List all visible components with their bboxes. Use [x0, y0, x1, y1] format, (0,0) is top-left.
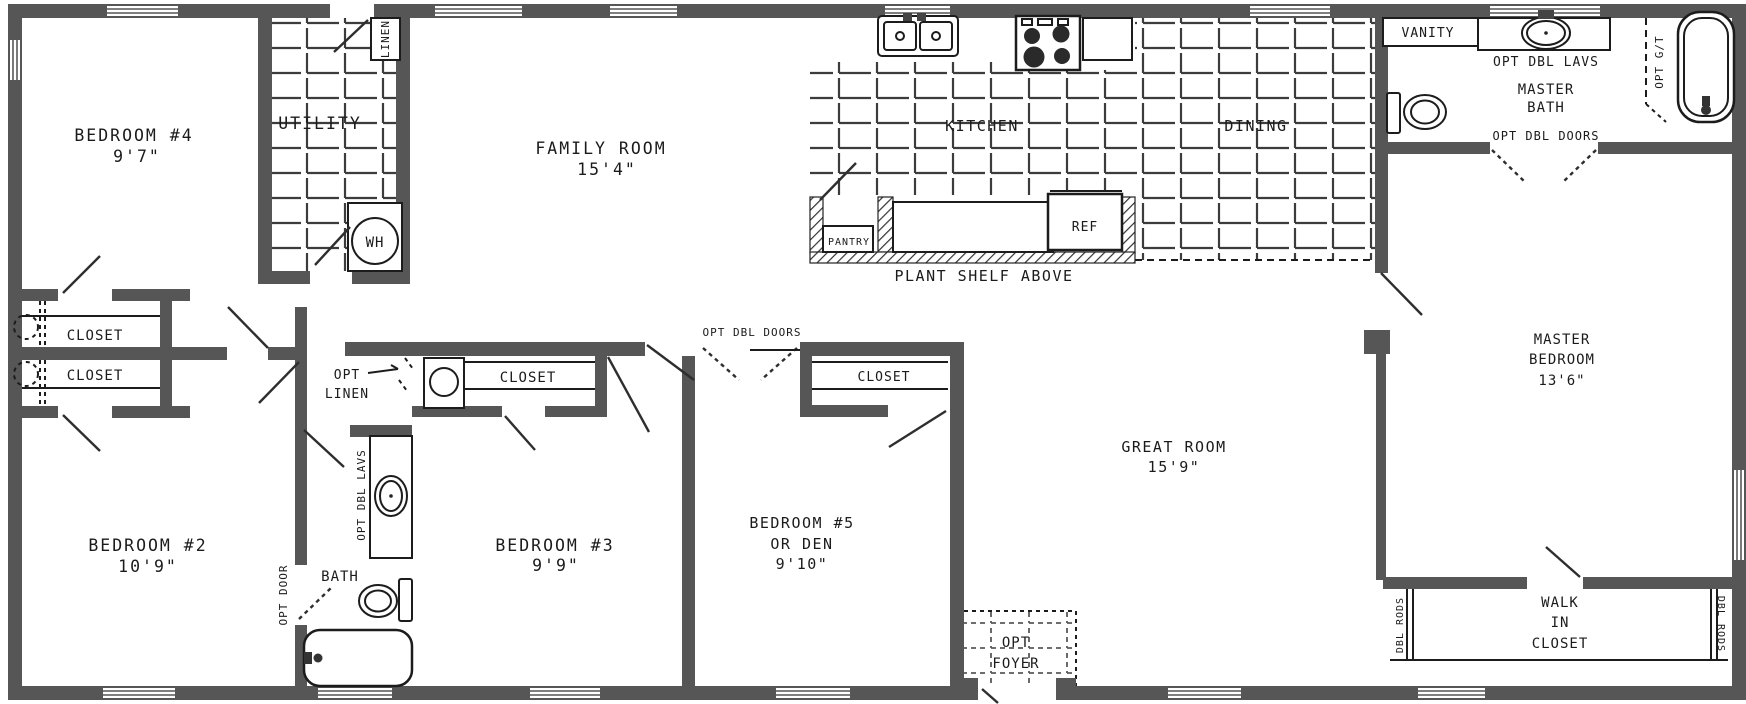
wall-walkin-closet-north [1583, 577, 1732, 589]
floor-plan: BEDROOM #4 9'7" UTILITY LINEN WH FAMILY … [0, 0, 1746, 704]
door-swing-walkin-closet [1546, 547, 1580, 577]
label-opt-garden-tub: OPT G/T [1653, 35, 1666, 88]
wall-closet-top [112, 289, 190, 301]
label-kitchen: KITCHEN [945, 117, 1019, 135]
opt-dbl-door-swing [761, 348, 797, 380]
label-bedroom3: BEDROOM #3 [495, 536, 614, 555]
opt-dbl-door-swing-masterbath [1492, 150, 1526, 183]
opt-dbl-door-swing-masterbath [1562, 150, 1596, 183]
label-opt-foyer-1: OPT [1002, 635, 1030, 651]
label-water-heater: WH [366, 235, 385, 251]
wall-utility-south [258, 271, 310, 284]
window [107, 6, 178, 16]
label-master-bedroom-2: BEDROOM [1529, 352, 1595, 368]
wall-greatroom-masterbedroom [1376, 354, 1386, 580]
window [435, 6, 522, 16]
label-bedroom5-alt: OR DEN [770, 535, 833, 553]
label-pantry: PANTRY [828, 237, 870, 248]
label-walkin-1: WALK [1541, 595, 1579, 611]
wall-foyer-stub [1056, 678, 1076, 686]
hall-bathtub [304, 630, 412, 686]
label-great-room: GREAT ROOM [1121, 438, 1226, 456]
garden-tub [1678, 12, 1734, 122]
door-swing-bedroom2 [259, 362, 299, 403]
wall-bed5-closet-bottom [800, 405, 888, 417]
wall-exterior-left [8, 4, 22, 700]
wall-bedroom4-utility [258, 18, 272, 271]
opt-linen-door [405, 358, 413, 369]
utility-exterior-door-gap [330, 4, 374, 18]
opt-linen-door [399, 380, 407, 391]
label-dining: DINING [1224, 117, 1287, 135]
opt-linen-arrow [368, 369, 398, 373]
label-closet-left-bottom: CLOSET [67, 368, 124, 384]
window [1250, 6, 1330, 16]
bar-wall-hatch [810, 252, 1135, 263]
label-plant-shelf: PLANT SHELF ABOVE [894, 267, 1073, 285]
bar-wall-hatch [1122, 197, 1135, 253]
label-bedroom2: BEDROOM #2 [88, 536, 207, 555]
door-swing-hall [228, 307, 268, 348]
label-great-room-dim: 15'9" [1148, 458, 1201, 476]
label-master-bedroom-dim: 13'6" [1538, 373, 1585, 389]
label-bedroom5: BEDROOM #5 [749, 514, 854, 532]
window [10, 40, 20, 80]
kitchen-counter [1083, 18, 1132, 60]
wall-bed3-closet-right [595, 356, 607, 414]
label-vanity: VANITY [1402, 26, 1455, 41]
wall-exterior-right [1732, 4, 1746, 700]
wall-masterbath-south [1598, 142, 1732, 154]
bar-wall-hatch [878, 197, 893, 252]
opt-linen-arrow [391, 365, 398, 369]
label-opt-foyer-2: FOYER [992, 656, 1039, 672]
window [1168, 688, 1241, 698]
wall-hall-south [345, 342, 412, 356]
label-opt-linen-2: LINEN [325, 387, 369, 402]
window [530, 688, 600, 698]
hall-bath-vanity [370, 436, 412, 558]
label-opt-dbl-doors-hall: OPT DBL DOORS [702, 326, 801, 339]
opt-garden-tub-line [1646, 104, 1666, 122]
wall-closet-right [160, 289, 172, 418]
label-master-bath-1: MASTER [1518, 82, 1575, 98]
wall-bed5-closet-top [800, 342, 953, 356]
window [776, 688, 850, 698]
label-master-bedroom-1: MASTER [1534, 332, 1591, 348]
label-closet-bed5: CLOSET [858, 370, 911, 385]
label-opt-dbl-lavs-master: OPT DBL LAVS [1493, 55, 1599, 70]
wall-masterbath-south [1383, 142, 1490, 154]
wall-walkin-closet-north [1383, 577, 1527, 589]
wall-closet-bottom [22, 406, 58, 418]
label-linen: LINEN [379, 20, 392, 58]
window [1734, 470, 1744, 560]
label-bedroom4: BEDROOM #4 [74, 126, 193, 145]
wall-foyer-stub [958, 678, 978, 686]
label-opt-linen-1: OPT [334, 368, 360, 383]
label-bedroom2-dim: 10'9" [118, 557, 178, 576]
wall-column [1364, 330, 1390, 354]
window [610, 6, 677, 16]
opt-door-swing [299, 588, 331, 619]
label-family-room: FAMILY ROOM [535, 139, 666, 158]
door-swing-hall-bath [304, 430, 344, 467]
door-swing-bed5-closet [889, 411, 946, 447]
foyer-door-gap [978, 686, 1056, 700]
label-refrigerator: REF [1072, 220, 1098, 235]
label-dbl-rods-right: DBL RODS [1715, 596, 1726, 652]
wall-bedroom2-bath [295, 307, 307, 565]
wall-bed3-closet-top [412, 342, 607, 356]
label-dbl-rods-left: DBL RODS [1395, 597, 1406, 653]
label-closet-left-top: CLOSET [67, 328, 124, 344]
label-closet-bed3: CLOSET [500, 370, 557, 386]
stove [1016, 16, 1080, 70]
label-master-bath-2: BATH [1527, 100, 1565, 116]
label-opt-dbl-lavs-hall: OPT DBL LAVS [355, 449, 368, 540]
opt-dbl-door-swing [703, 348, 739, 380]
door-swing-bedroom4 [63, 256, 100, 293]
door-swing-master-bedroom [1381, 273, 1422, 315]
window [103, 688, 175, 698]
door-swing-bedroom3 [608, 357, 649, 432]
door-swing-bed3-closet [505, 416, 535, 450]
wall-bedroom2-north [172, 347, 227, 360]
hall-bath-toilet [359, 579, 412, 621]
door-swing-closet [63, 415, 100, 451]
label-opt-dbl-doors-master: OPT DBL DOORS [1493, 129, 1600, 143]
label-opt-door: OPT DOOR [277, 565, 290, 626]
label-family-room-dim: 15'4" [577, 160, 637, 179]
window [1418, 688, 1485, 698]
label-bath: BATH [321, 569, 359, 585]
label-walkin-2: IN [1551, 615, 1570, 631]
closet-cabinet [424, 358, 464, 408]
bar-counter [893, 202, 1053, 252]
wall-hall-south [607, 342, 645, 356]
wall-closet-top [22, 289, 58, 301]
label-bedroom3-dim: 9'9" [532, 556, 580, 575]
wall-exterior-top [8, 4, 1738, 18]
window [318, 688, 392, 698]
label-bedroom5-dim: 9'10" [776, 555, 829, 573]
label-bedroom4-dim: 9'7" [113, 147, 161, 166]
wall-bed3-bed5 [682, 356, 695, 686]
bar-wall-hatch [810, 197, 823, 253]
label-walkin-3: CLOSET [1532, 636, 1589, 652]
wall-bed5-greatroom [950, 342, 964, 686]
wall-bed3-closet-bottom [545, 406, 607, 417]
label-utility: UTILITY [278, 114, 362, 133]
wall-closet-divider [22, 347, 160, 360]
wall-utility-south [352, 271, 410, 284]
kitchen-sink [878, 13, 958, 56]
wall-closet-bottom [112, 406, 190, 418]
floor-plan-drawing: BEDROOM #4 9'7" UTILITY LINEN WH FAMILY … [0, 0, 1746, 704]
master-toilet [1387, 93, 1446, 133]
